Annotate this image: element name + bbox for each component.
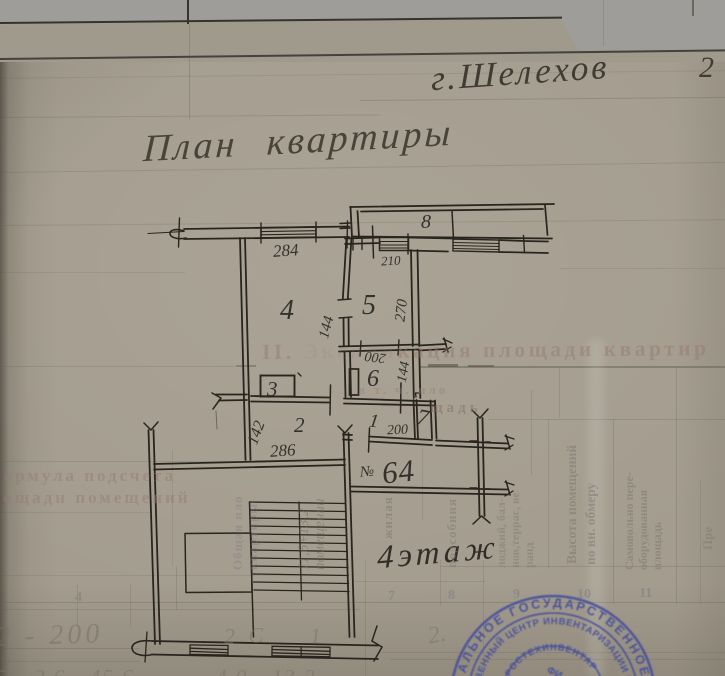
svg-text:ФИ: ФИ (545, 665, 564, 676)
